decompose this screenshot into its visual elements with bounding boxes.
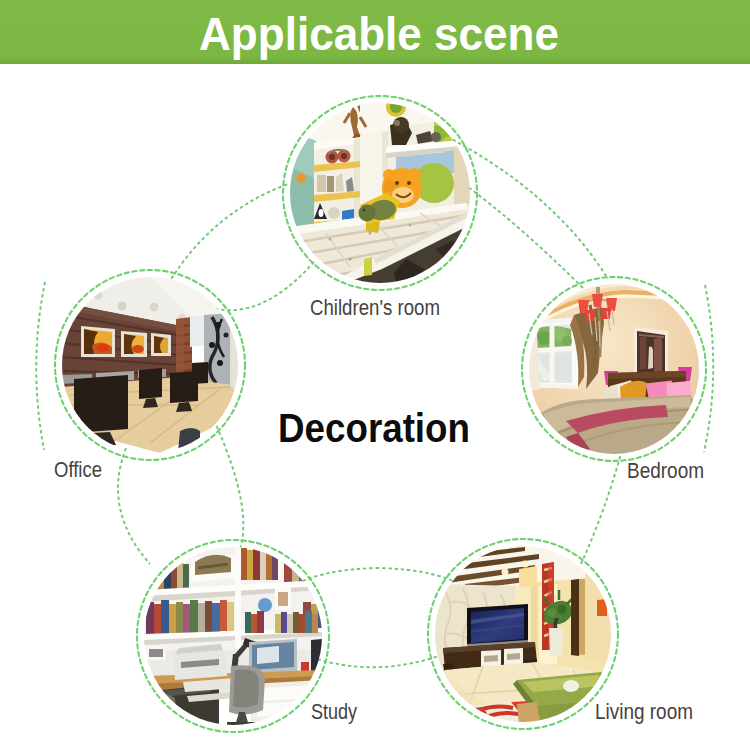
svg-text:Study: Study [311, 699, 358, 724]
svg-text:Bedroom: Bedroom [627, 458, 704, 483]
svg-text:Children's room: Children's room [310, 295, 440, 320]
svg-text:Office: Office [54, 457, 102, 482]
svg-text:Living room: Living room [595, 699, 693, 724]
